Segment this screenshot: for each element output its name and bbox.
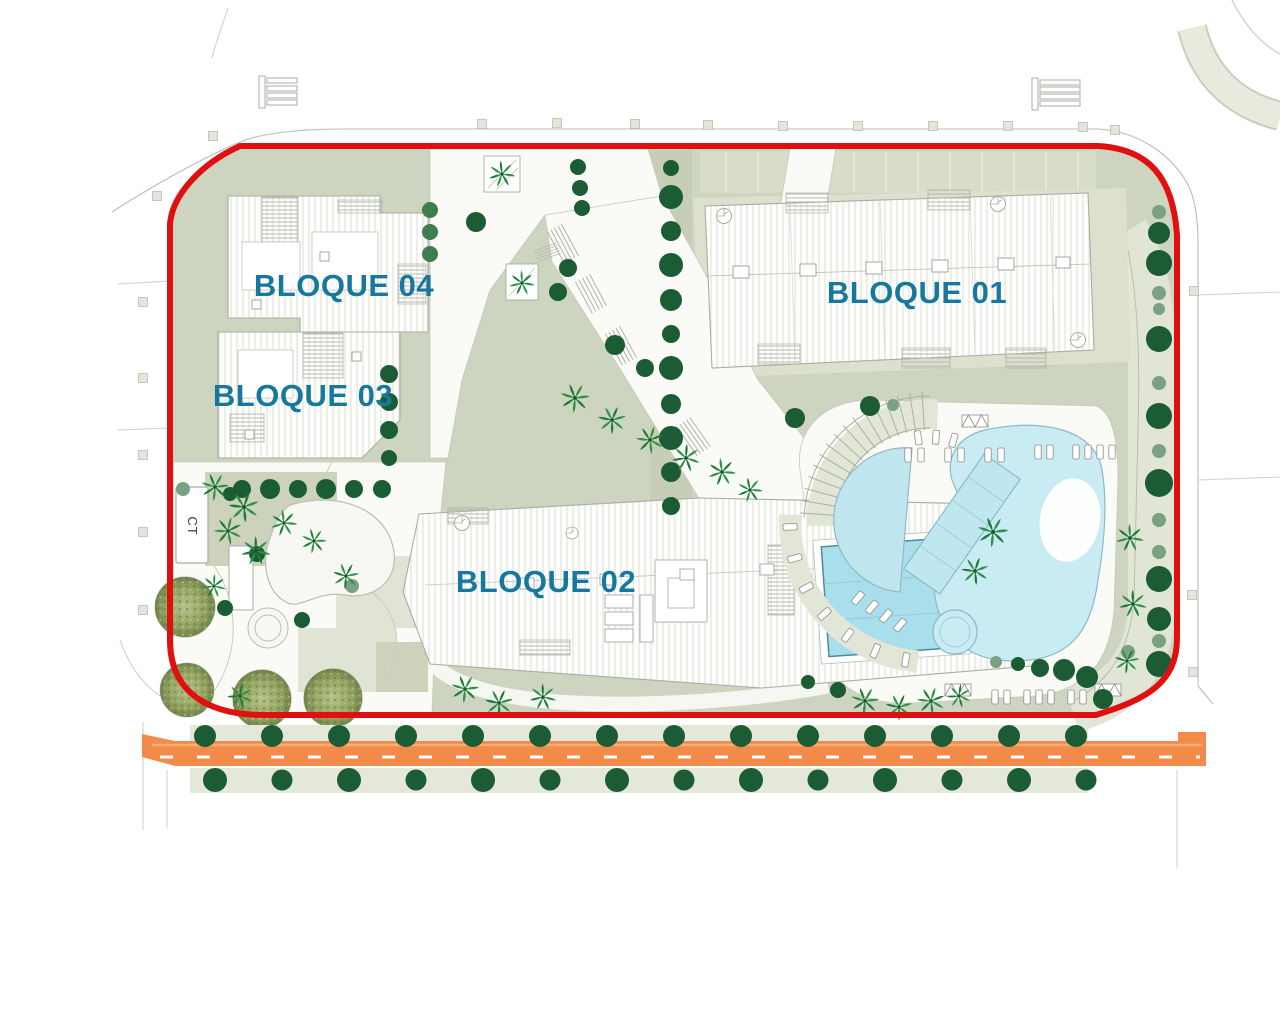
tree-icon (942, 770, 963, 791)
tree-icon (289, 480, 307, 498)
bloque-03-label: BLOQUE 03 (213, 378, 393, 413)
spiral-stair-icon (1071, 333, 1086, 348)
tree-icon (1148, 222, 1170, 244)
street-marker-icon (153, 192, 162, 201)
street-marker-icon (209, 132, 218, 141)
sunbed-icon (1047, 445, 1053, 459)
tree-icon (662, 497, 680, 515)
shrub-icon (1152, 634, 1166, 648)
tree-icon (605, 335, 625, 355)
stair-icon (786, 193, 828, 213)
tree-icon (1146, 403, 1172, 429)
shrub-icon (887, 399, 899, 411)
sunbed-icon (992, 690, 998, 704)
street-marker-icon (553, 119, 562, 128)
tree-icon (636, 359, 654, 377)
tree-icon (540, 770, 561, 791)
textured-tree-icon (155, 577, 215, 637)
tree-icon (559, 259, 577, 277)
stair-icon (928, 190, 970, 210)
street-marker-icon (139, 374, 148, 383)
tree-icon (316, 479, 336, 499)
site-plan-canvas: BLOQUE 01 BLOQUE 02 BLOQUE 03 BLOQUE 04 … (0, 0, 1280, 1024)
tree-icon (659, 356, 683, 380)
tree-icon (570, 159, 586, 175)
tree-icon (605, 768, 629, 792)
spiral-stair-icon (566, 527, 578, 539)
tree-icon (797, 725, 819, 747)
tree-icon (272, 770, 293, 791)
tree-icon (261, 725, 283, 747)
parking-strip (700, 151, 1096, 193)
site-plan-page: BLOQUE 01 BLOQUE 02 BLOQUE 03 BLOQUE 04 … (0, 0, 1280, 1024)
shrub-icon (1152, 205, 1166, 219)
tree-icon (1145, 469, 1173, 497)
sunbed-icon (932, 430, 939, 444)
tree-icon (529, 725, 551, 747)
tree-icon (572, 180, 588, 196)
sunbed-icon (1024, 690, 1030, 704)
tree-icon (380, 421, 398, 439)
tree-icon (466, 212, 486, 232)
shrub-icon (990, 656, 1002, 668)
tree-icon (663, 160, 679, 176)
sunbed-icon (905, 448, 911, 462)
tree-icon (373, 480, 391, 498)
street-marker-icon (1079, 123, 1088, 132)
tree-icon (663, 725, 685, 747)
tree-icon (381, 450, 397, 466)
tree-icon (1147, 607, 1171, 631)
bloque-04-building (228, 196, 428, 332)
tree-icon (1093, 689, 1113, 709)
spiral-stair-icon (717, 209, 732, 224)
shrub-icon (1152, 286, 1166, 300)
tree-icon (739, 768, 763, 792)
sunbed-icon (918, 448, 924, 462)
tree-icon (1031, 659, 1049, 677)
sunbed-icon (998, 448, 1004, 462)
stair-icon (1006, 348, 1046, 368)
tree-icon (422, 224, 438, 240)
tree-icon (674, 770, 695, 791)
sunbed-icon (1097, 445, 1103, 459)
tree-icon (203, 768, 227, 792)
street-marker-icon (704, 121, 713, 130)
sunbed-icon (958, 448, 964, 462)
sunbed-icon (945, 448, 951, 462)
pergola-icon (945, 684, 971, 696)
tree-icon (659, 426, 683, 450)
street-marker-icon (779, 122, 788, 131)
fountain (248, 608, 288, 648)
sunbed-icon (1068, 690, 1074, 704)
street-marker-icon (631, 120, 640, 129)
tree-icon (785, 408, 805, 428)
shrub-icon (1152, 513, 1166, 527)
tree-icon (662, 325, 680, 343)
tree-icon (860, 396, 880, 416)
shrub-icon (176, 482, 190, 496)
tree-icon (549, 283, 567, 301)
tree-icon (661, 394, 681, 414)
stair-icon (902, 348, 950, 368)
stair-icon (758, 344, 800, 364)
tree-icon (1076, 770, 1097, 791)
tree-icon (1146, 326, 1172, 352)
tree-icon (574, 200, 590, 216)
tree-icon (1146, 566, 1172, 592)
bloque-04-label: BLOQUE 04 (254, 268, 434, 303)
tree-icon (801, 675, 815, 689)
tree-icon (194, 725, 216, 747)
spiral-stair-icon (991, 197, 1006, 212)
tree-icon (830, 682, 846, 698)
tree-icon (462, 725, 484, 747)
sunbed-icon (1073, 445, 1079, 459)
bloque-02-label: BLOQUE 02 (456, 564, 636, 599)
street-marker-icon (1188, 591, 1197, 600)
tree-icon (808, 770, 829, 791)
tree-icon (931, 725, 953, 747)
sunbed-icon (914, 430, 922, 445)
sunbed-icon (1080, 690, 1086, 704)
street-marker-icon (478, 120, 487, 129)
tree-icon (661, 221, 681, 241)
tree-icon (406, 770, 427, 791)
tree-icon (1011, 657, 1025, 671)
street-marker-icon (1111, 126, 1120, 135)
stair-icon (262, 197, 298, 243)
tree-icon (659, 185, 683, 209)
tree-icon (471, 768, 495, 792)
tree-icon (730, 725, 752, 747)
shrub-icon (1152, 545, 1166, 559)
tree-icon (660, 289, 682, 311)
tree-icon (260, 479, 280, 499)
shrub-icon (1153, 303, 1165, 315)
street-marker-icon (139, 606, 148, 615)
street-structure-icon (1032, 78, 1080, 110)
tree-icon (596, 725, 618, 747)
tree-icon (217, 600, 233, 616)
street-marker-icon (139, 528, 148, 537)
tree-icon (395, 725, 417, 747)
tree-icon (1146, 250, 1172, 276)
stair-icon (303, 333, 343, 378)
spiral-stair-icon (455, 516, 470, 531)
bloque-01-label: BLOQUE 01 (827, 275, 1007, 310)
tree-icon (223, 487, 237, 501)
street-marker-icon (139, 451, 148, 460)
tree-icon (1065, 725, 1087, 747)
street-structure-icon (259, 76, 297, 108)
sunbed-icon (783, 523, 797, 530)
shrub-icon (1152, 376, 1166, 390)
street-road (142, 725, 1206, 793)
sunbed-icon (1048, 690, 1054, 704)
textured-tree-icon (304, 669, 362, 727)
sunbed-icon (1035, 445, 1041, 459)
sunbed-icon (985, 448, 991, 462)
tree-icon (1076, 666, 1098, 688)
plant-room-grid (605, 595, 653, 642)
tree-icon (1053, 659, 1075, 681)
street-marker-icon (929, 122, 938, 131)
pergola-icon (962, 415, 988, 427)
tree-icon (659, 253, 683, 277)
tree-icon (1007, 768, 1031, 792)
sunbed-icon (1036, 690, 1042, 704)
shrub-icon (1152, 444, 1166, 458)
tree-icon (998, 725, 1020, 747)
sidewalk-curve-topleft (212, 8, 228, 58)
transformer-label: CT (185, 516, 200, 535)
tree-icon (422, 202, 438, 218)
street-marker-icon (139, 298, 148, 307)
tree-icon (864, 725, 886, 747)
street-marker-icon (1190, 287, 1199, 296)
street-marker-icon (1189, 668, 1198, 677)
sunbed-icon (1085, 445, 1091, 459)
tree-icon (337, 768, 361, 792)
stair-icon (520, 640, 570, 655)
street-marker-icon (854, 122, 863, 131)
street-marker-icon (1004, 122, 1013, 131)
tree-icon (294, 612, 310, 628)
tree-icon (328, 725, 350, 747)
sunbed-icon (1004, 690, 1010, 704)
tree-icon (661, 462, 681, 482)
textured-tree-icon (233, 670, 291, 728)
sunbed-icon (1109, 445, 1115, 459)
stair-icon (338, 200, 382, 213)
tree-icon (873, 768, 897, 792)
tree-icon (422, 246, 438, 262)
tree-icon (345, 480, 363, 498)
